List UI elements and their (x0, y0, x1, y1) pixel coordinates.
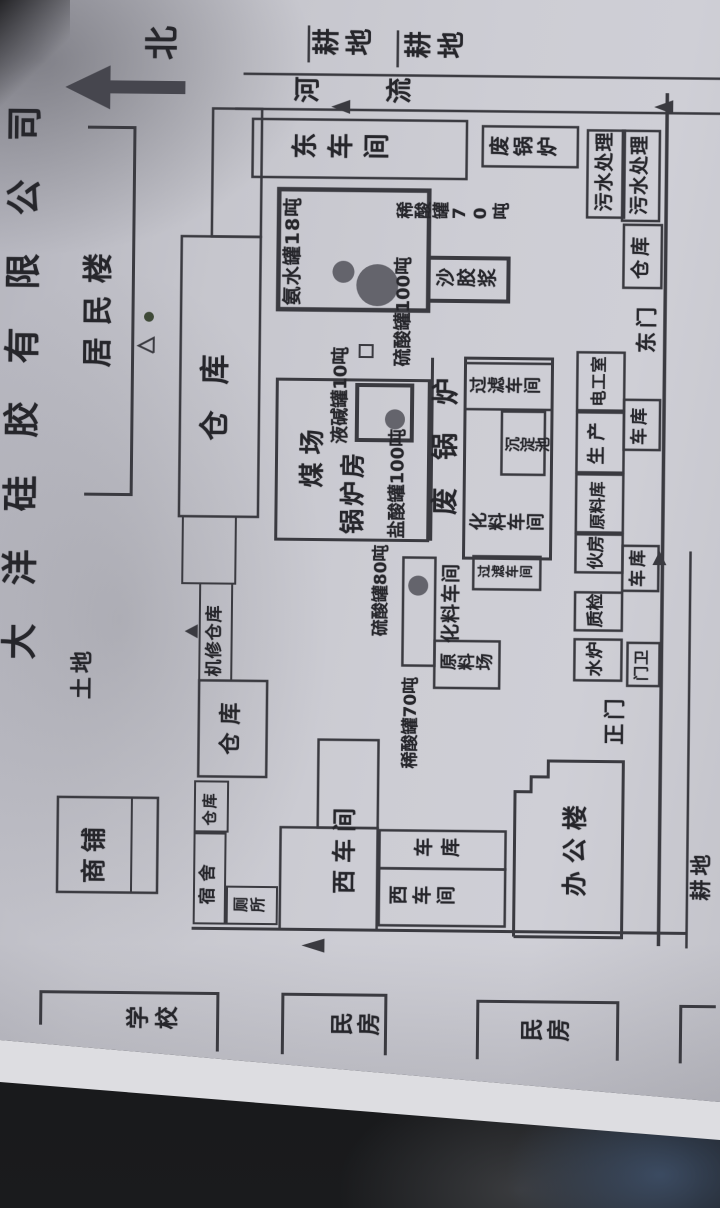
filter-workshop-1-label: 过滤车间 (469, 379, 541, 398)
main-gate-label: 正门 (604, 695, 627, 745)
south-gate-marker (652, 551, 666, 565)
ammonia-circle-small (332, 261, 354, 283)
dormitory-label: 宿舍 (200, 858, 218, 904)
photo-corner-shadow (0, 0, 70, 110)
west-wall (192, 928, 687, 933)
warehouse-band-label: 仓库 (200, 328, 233, 440)
west-workshop-1-label: 西车间 (332, 801, 358, 894)
boiler-tank-circle (385, 409, 405, 429)
dilute-acid-tank-70t-b-label: 稀酸罐70吨 (402, 677, 421, 769)
warehouse-c-rect (182, 516, 236, 584)
east-gate-label: 东门 (636, 303, 659, 353)
east-workshop-label: 东车间 (291, 135, 399, 163)
kitchen-label: 伙房 (588, 535, 606, 569)
warehouse-big-label: 仓库 (219, 695, 243, 755)
quality-check-label: 质检 (588, 593, 606, 627)
north-label-label: 北 (146, 26, 182, 60)
sand-gel-slurry-label: 沙胶浆 (435, 270, 498, 291)
north-arrow-shaft (103, 80, 185, 94)
north-arrow-head (65, 65, 110, 109)
tank-strip-circle (408, 576, 428, 596)
raw-material-yard-label: 原料场 (439, 656, 493, 674)
school-label: 学校 (125, 1008, 183, 1033)
garage-1-label: 车库 (632, 405, 650, 445)
farmland-south-label: 耕地 (690, 850, 713, 900)
site-plan-diagram: 大洋硅胶有限公司北耕地耕地河流土地居民楼商铺仓库机修仓库仓库仓库宿舍厕所东车间废… (0, 0, 720, 1208)
boiler-room-label: 锅炉房 (340, 450, 367, 534)
civilian-house-2-label: 民房 (519, 1021, 573, 1046)
tiny-square (360, 345, 373, 357)
farmland-east-2-label: 耕地 (404, 34, 470, 63)
west-workshop-2-label: 西车间 (388, 887, 460, 908)
office-building-label: 办公楼 (562, 797, 589, 896)
filter-workshop-2-label: 过滤车间 (477, 567, 533, 581)
civilian-house-1-label: 民房 (329, 1015, 383, 1040)
chemical-workshop-1-label: 化料车间 (469, 514, 545, 534)
river-line-inner (235, 109, 720, 114)
farmland-east-1-label: 耕地 (312, 31, 378, 60)
sedimentation-pool-label: 沉淀池 (505, 438, 550, 454)
dilute-acid-tank-70t-a-label: 稀酸罐70吨 (396, 205, 510, 224)
toilet-label: 厕所 (233, 898, 267, 914)
sulfuric-acid-tank-80t-label: 硫酸罐80吨 (373, 544, 392, 636)
residents-dot (144, 312, 154, 322)
civilian3-bracket (680, 1006, 716, 1063)
river-label-label: 河流 (293, 79, 477, 108)
coal-yard-label: 煤场 (299, 421, 326, 487)
residents-building-label: 居民楼 (82, 241, 115, 367)
chemical-workshop-2-label: 化料车间 (442, 563, 463, 643)
ammonia-tank-18t-label: 氨水罐18吨 (283, 197, 304, 306)
waste-boiler-room-label: 废锅炉 (489, 137, 561, 159)
warehouse-a-rect (212, 108, 262, 237)
north-gate-marker (185, 624, 198, 638)
west-workshop-main (280, 827, 378, 930)
land-label-label: 土地 (71, 647, 95, 699)
water-boiler-label: 水炉 (587, 640, 605, 676)
photo-of-site-plan: 大洋硅胶有限公司北耕地耕地河流土地居民楼商铺仓库机修仓库仓库仓库宿舍厕所东车间废… (0, 0, 720, 1208)
waste-boiler-big-label: 废锅炉 (432, 350, 462, 515)
sulfuric-acid-tank-100t-label: 硫酸罐100吨 (394, 257, 414, 367)
garage-row-top-line (623, 450, 624, 546)
page: { "title": { "text": "大洋硅胶有限公司" }, "colo… (0, 0, 720, 1208)
machine-repair-warehouse-label: 机修仓库 (206, 604, 225, 676)
garage-2-label: 车库 (630, 547, 648, 587)
electrician-room-label: 电工室 (591, 355, 608, 406)
gate-guard-label: 门卫 (634, 649, 650, 681)
hydrochloric-tank-100t-label: 盐酸罐100吨 (389, 429, 409, 539)
garage-strip-label: 车库 (413, 840, 467, 861)
residents-triangle (139, 338, 154, 353)
warehouse-east-label: 仓库 (631, 233, 651, 279)
raw-material-warehouse-label: 原料库 (590, 481, 607, 529)
sewage-treatment-2-label: 污水处理 (630, 135, 651, 215)
production-label: 生产 (588, 416, 607, 464)
tank-strip-rect (402, 557, 435, 665)
west-gate-marker (301, 938, 324, 952)
warehouse-small-label: 仓库 (203, 791, 219, 825)
shops-label: 商铺 (81, 821, 108, 883)
sewage-treatment-1-label: 污水处理 (595, 131, 616, 211)
liquid-caustic-tank-10t-label: 液碱罐10吨 (332, 347, 352, 444)
company-title-label: 大洋硅胶有限公司 (1, 67, 45, 659)
shop-divider (131, 798, 132, 893)
